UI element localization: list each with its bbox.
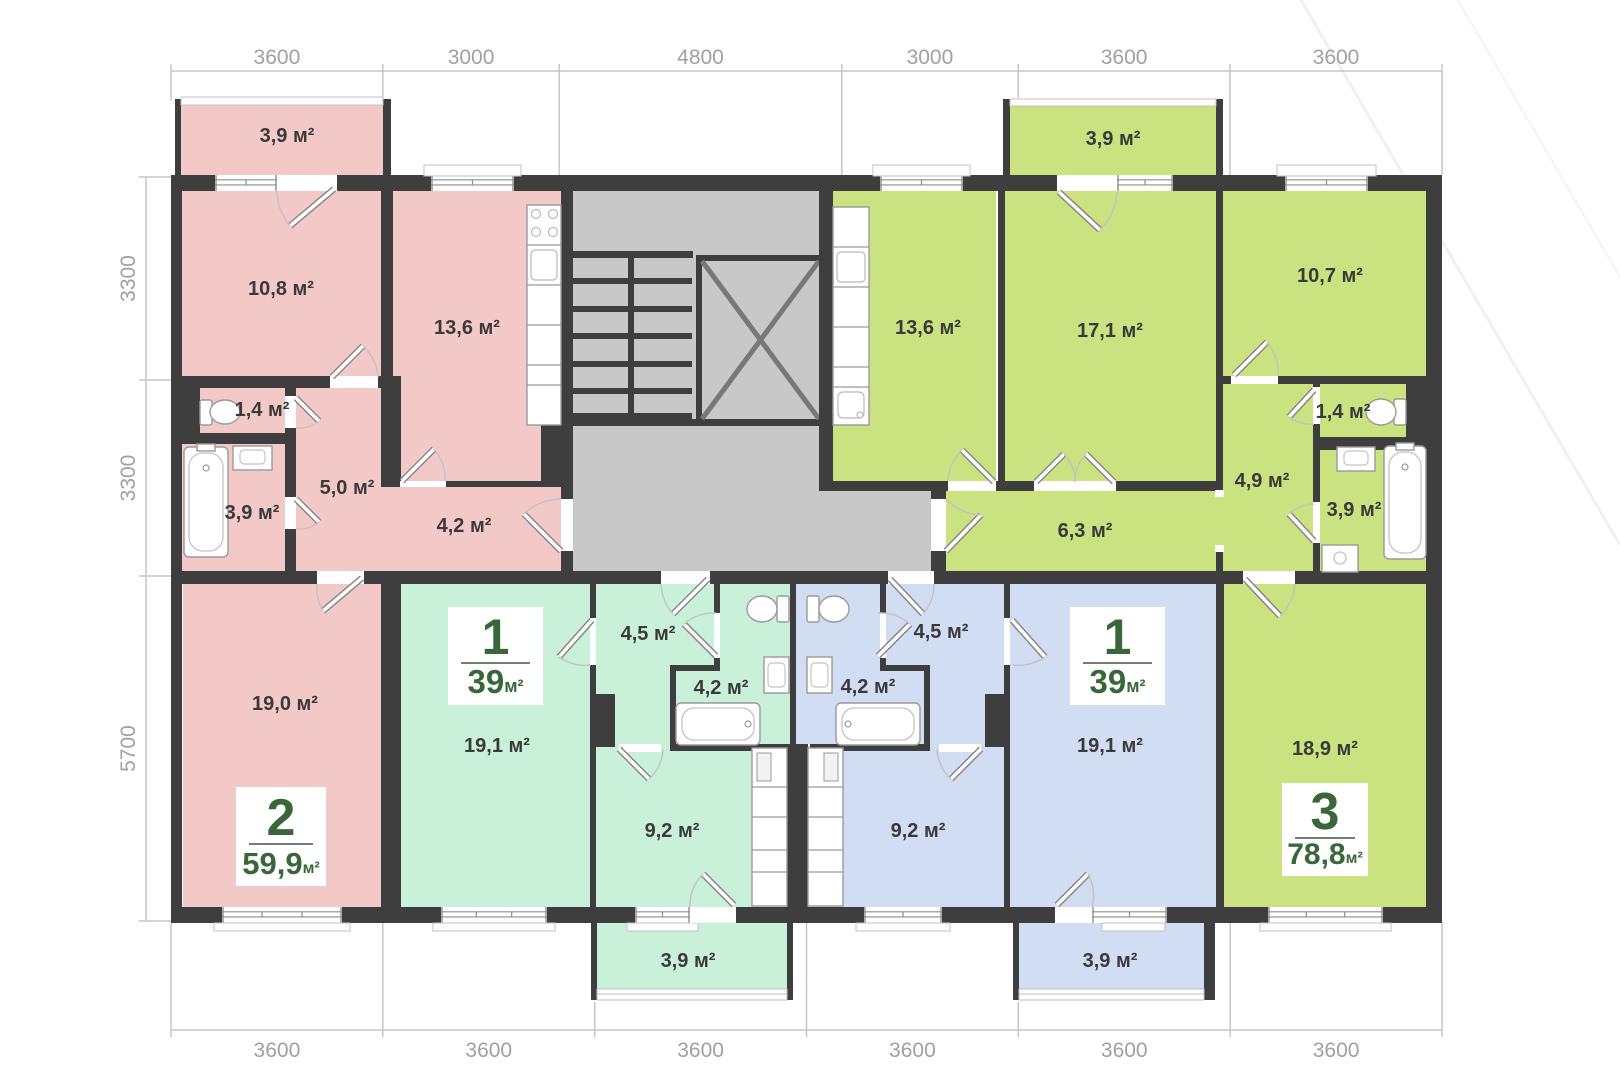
svg-text:4,5 м²: 4,5 м² — [914, 621, 969, 643]
svg-text:3,9 м²: 3,9 м² — [260, 125, 315, 147]
svg-text:4,2 м²: 4,2 м² — [841, 676, 896, 698]
svg-text:13,6 м²: 13,6 м² — [434, 317, 500, 339]
svg-text:17,1 м²: 17,1 м² — [1077, 320, 1143, 342]
svg-text:1,4 м²: 1,4 м² — [235, 399, 290, 421]
svg-text:2: 2 — [267, 789, 296, 847]
svg-text:3600: 3600 — [1313, 1039, 1360, 1062]
svg-text:19,1 м²: 19,1 м² — [464, 735, 530, 757]
svg-text:3000: 3000 — [907, 46, 954, 69]
svg-text:19,1 м²: 19,1 м² — [1077, 735, 1143, 757]
svg-text:3600: 3600 — [1101, 1039, 1148, 1062]
svg-text:9,2 м²: 9,2 м² — [645, 820, 700, 842]
svg-text:5,0 м²: 5,0 м² — [320, 477, 375, 499]
svg-text:5700: 5700 — [117, 725, 140, 772]
svg-text:3,9 м²: 3,9 м² — [225, 502, 280, 524]
svg-text:3600: 3600 — [889, 1039, 936, 1062]
svg-text:4,5 м²: 4,5 м² — [621, 623, 676, 645]
svg-text:3600: 3600 — [1313, 46, 1360, 69]
svg-text:13,6 м²: 13,6 м² — [895, 317, 961, 339]
svg-text:3600: 3600 — [254, 46, 301, 69]
svg-text:18,9 м²: 18,9 м² — [1292, 738, 1358, 760]
svg-text:3300: 3300 — [117, 455, 140, 502]
svg-text:3600: 3600 — [1101, 46, 1148, 69]
svg-text:1,4 м²: 1,4 м² — [1316, 401, 1371, 423]
svg-text:1: 1 — [482, 609, 510, 665]
svg-text:3600: 3600 — [677, 1039, 724, 1062]
svg-text:3,9 м²: 3,9 м² — [1083, 950, 1138, 972]
svg-text:3,9 м²: 3,9 м² — [661, 950, 716, 972]
svg-text:3: 3 — [1311, 783, 1340, 841]
svg-text:1: 1 — [1104, 609, 1132, 665]
svg-text:3300: 3300 — [117, 255, 140, 302]
svg-text:4800: 4800 — [677, 46, 724, 69]
svg-text:3,9 м²: 3,9 м² — [1327, 499, 1382, 521]
svg-text:4,2 м²: 4,2 м² — [694, 677, 749, 699]
svg-text:4,9 м²: 4,9 м² — [1235, 470, 1290, 492]
svg-text:10,7 м²: 10,7 м² — [1297, 265, 1363, 287]
svg-text:3600: 3600 — [465, 1039, 512, 1062]
svg-text:10,8 м²: 10,8 м² — [248, 278, 314, 300]
svg-text:3600: 3600 — [254, 1039, 301, 1062]
svg-text:19,0 м²: 19,0 м² — [252, 693, 318, 715]
svg-text:3,9 м²: 3,9 м² — [1086, 128, 1141, 150]
svg-text:6,3 м²: 6,3 м² — [1058, 520, 1113, 542]
svg-text:4,2 м²: 4,2 м² — [437, 515, 492, 537]
svg-text:9,2 м²: 9,2 м² — [891, 820, 946, 842]
svg-text:3000: 3000 — [448, 46, 495, 69]
